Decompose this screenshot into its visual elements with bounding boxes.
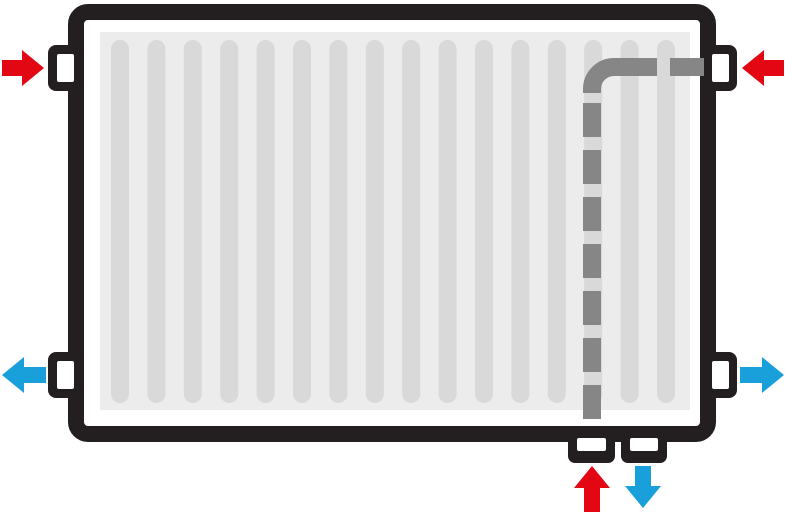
radiator-rib <box>402 40 420 403</box>
red-arrow-left-icon <box>742 50 784 86</box>
blue-arrow-down-icon <box>625 466 661 508</box>
radiator-rib <box>366 40 384 403</box>
port-bottom-center-left-opening <box>577 438 606 451</box>
radiator-rib <box>475 40 493 403</box>
port-top-left <box>48 45 82 91</box>
radiator-rib <box>257 40 275 403</box>
radiator-rib <box>511 40 529 403</box>
blue-arrow-left-icon <box>2 357 46 393</box>
port-bottom-right <box>704 352 737 398</box>
radiator-rib <box>220 40 238 403</box>
port-bottom-center-right <box>621 430 667 463</box>
port-bottom-right-opening <box>712 361 729 389</box>
red-arrow-right-icon <box>2 50 44 86</box>
radiator-rib <box>147 40 165 403</box>
radiator-rib <box>184 40 202 403</box>
radiator-schematic-canvas <box>0 0 786 512</box>
red-arrow-up-icon <box>574 466 610 512</box>
radiator-rib <box>111 40 129 403</box>
port-bottom-center-right-opening <box>630 438 658 451</box>
radiator-rib <box>657 40 675 403</box>
radiator-rib <box>548 40 566 403</box>
radiator-diagram <box>0 0 786 512</box>
radiator-rib <box>329 40 347 403</box>
port-top-left-opening <box>57 54 74 82</box>
radiator-rib <box>621 40 639 403</box>
radiator-rib <box>293 40 311 403</box>
port-top-right <box>704 45 737 91</box>
radiator-rib <box>439 40 457 403</box>
blue-arrow-right-icon <box>740 357 784 393</box>
port-bottom-left <box>48 352 82 398</box>
port-top-right-opening <box>712 54 729 82</box>
port-bottom-left-opening <box>57 361 74 389</box>
port-bottom-center-left <box>568 430 615 463</box>
